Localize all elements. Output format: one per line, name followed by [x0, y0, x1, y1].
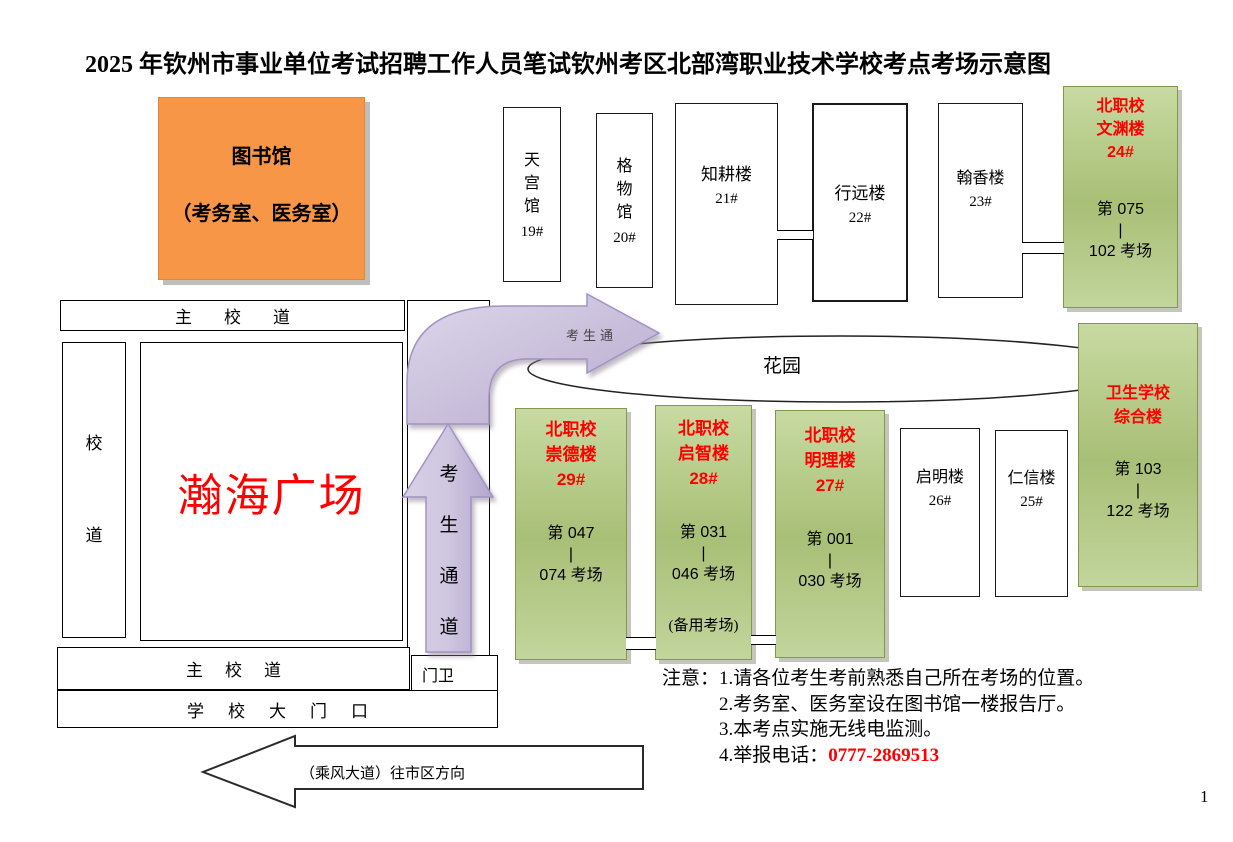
examinee-route-curved-arrow — [407, 294, 659, 424]
page-title: 2025 年钦州市事业单位考试招聘工作人员笔试钦州考区北部湾职业技术学校考点考场… — [85, 44, 1051, 79]
examinee-route-label: 考生通 — [566, 325, 617, 344]
note-item-4-text: 4.举报电话： — [719, 745, 828, 766]
notes-block: 注意： 1.请各位考生考前熟悉自己所在考场的位置。 2.考务室、医务室设在图书馆… — [662, 666, 1094, 768]
page-title-part2: 钦州考区北部湾职业技术学校考点考场示意图 — [571, 51, 1051, 78]
note-item-1: 1.请各位考生考前熟悉自己所在考场的位置。 — [719, 666, 1094, 692]
note-item-4: 4.举报电话：0777-2869513 — [719, 743, 1094, 769]
note-item-2: 2.考务室、医务室设在图书馆一楼报告厅。 — [719, 692, 1094, 718]
notes-items: 1.请各位考生考前熟悉自己所在考场的位置。 2.考务室、医务室设在图书馆一楼报告… — [719, 666, 1094, 768]
note-item-3: 3.本考点实施无线电监测。 — [719, 717, 1094, 743]
garden-label: 花园 — [763, 351, 801, 378]
examinee-corridor-label: 考生通道 — [436, 449, 462, 653]
direction-arrow-label: （乘风大道）往市区方向 — [300, 762, 465, 783]
page-title-part1: 2025 年钦州市事业单位考试招聘工作人员笔试 — [85, 52, 571, 78]
exam-venue-map-page: 2025 年钦州市事业单位考试招聘工作人员笔试钦州考区北部湾职业技术学校考点考场… — [0, 0, 1233, 842]
notes-label: 注意： — [662, 666, 719, 768]
page-number: 1 — [1200, 787, 1209, 807]
report-phone-number: 0777-2869513 — [828, 745, 939, 766]
